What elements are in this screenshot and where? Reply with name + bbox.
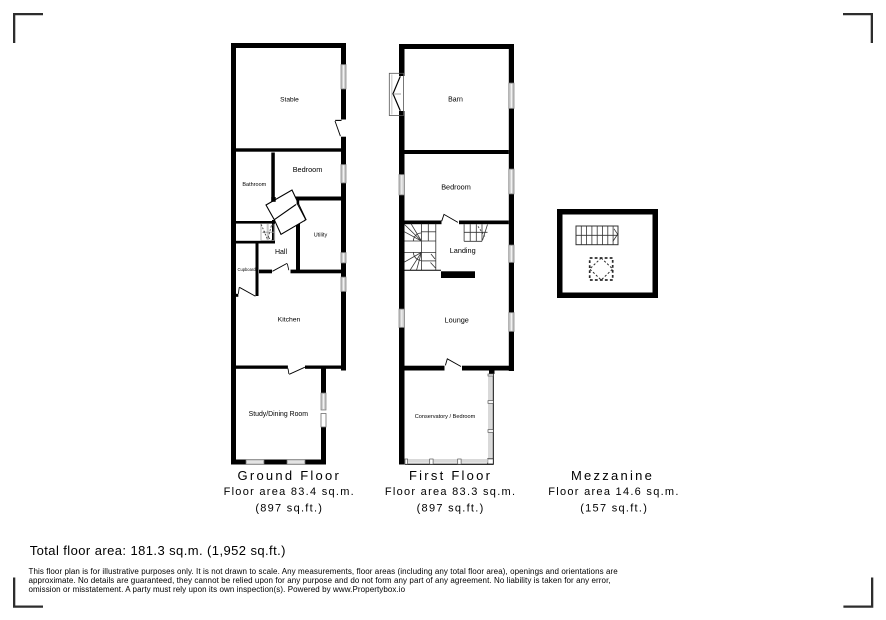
svg-text:Conservatory / Bedroom: Conservatory / Bedroom	[415, 414, 476, 420]
svg-text:Floor area 83.4 sq.m.: Floor area 83.4 sq.m.	[224, 486, 355, 498]
svg-text:approximate. No details are gu: approximate. No details are guaranteed, …	[29, 576, 611, 585]
svg-text:Total floor area: 181.3 sq.m.: Total floor area: 181.3 sq.m. (1,952 sq.…	[30, 543, 286, 558]
svg-text:Kitchen: Kitchen	[278, 317, 301, 324]
svg-text:First Floor: First Floor	[409, 468, 492, 483]
svg-text:Utility: Utility	[314, 233, 328, 239]
svg-text:(897 sq.ft.): (897 sq.ft.)	[417, 502, 485, 514]
svg-text:Bathroom: Bathroom	[242, 182, 266, 188]
svg-text:(897 sq.ft.): (897 sq.ft.)	[255, 502, 323, 514]
svg-text:Stable: Stable	[280, 97, 299, 104]
svg-text:Floor area 83.3 sq.m.: Floor area 83.3 sq.m.	[385, 486, 516, 498]
svg-text:Bedroom: Bedroom	[293, 165, 323, 174]
svg-text:This floor plan is for illustr: This floor plan is for illustrative purp…	[29, 567, 619, 576]
svg-text:Floor area 14.6 sq.m.: Floor area 14.6 sq.m.	[548, 486, 679, 498]
svg-text:Landing: Landing	[450, 246, 476, 255]
svg-text:Bedroom: Bedroom	[441, 183, 471, 192]
svg-text:Mezzanine: Mezzanine	[571, 468, 654, 483]
svg-text:Ground Floor: Ground Floor	[238, 468, 342, 483]
svg-text:(157 sq.ft.): (157 sq.ft.)	[580, 502, 648, 514]
svg-text:omission or misstatement. A pa: omission or misstatement. A party must r…	[29, 585, 406, 594]
svg-text:Barn: Barn	[448, 97, 463, 104]
svg-text:Cupboard: Cupboard	[238, 267, 257, 272]
svg-text:Hall: Hall	[275, 249, 288, 256]
svg-text:Lounge: Lounge	[445, 315, 469, 324]
svg-text:Study/Dining Room: Study/Dining Room	[249, 411, 309, 418]
